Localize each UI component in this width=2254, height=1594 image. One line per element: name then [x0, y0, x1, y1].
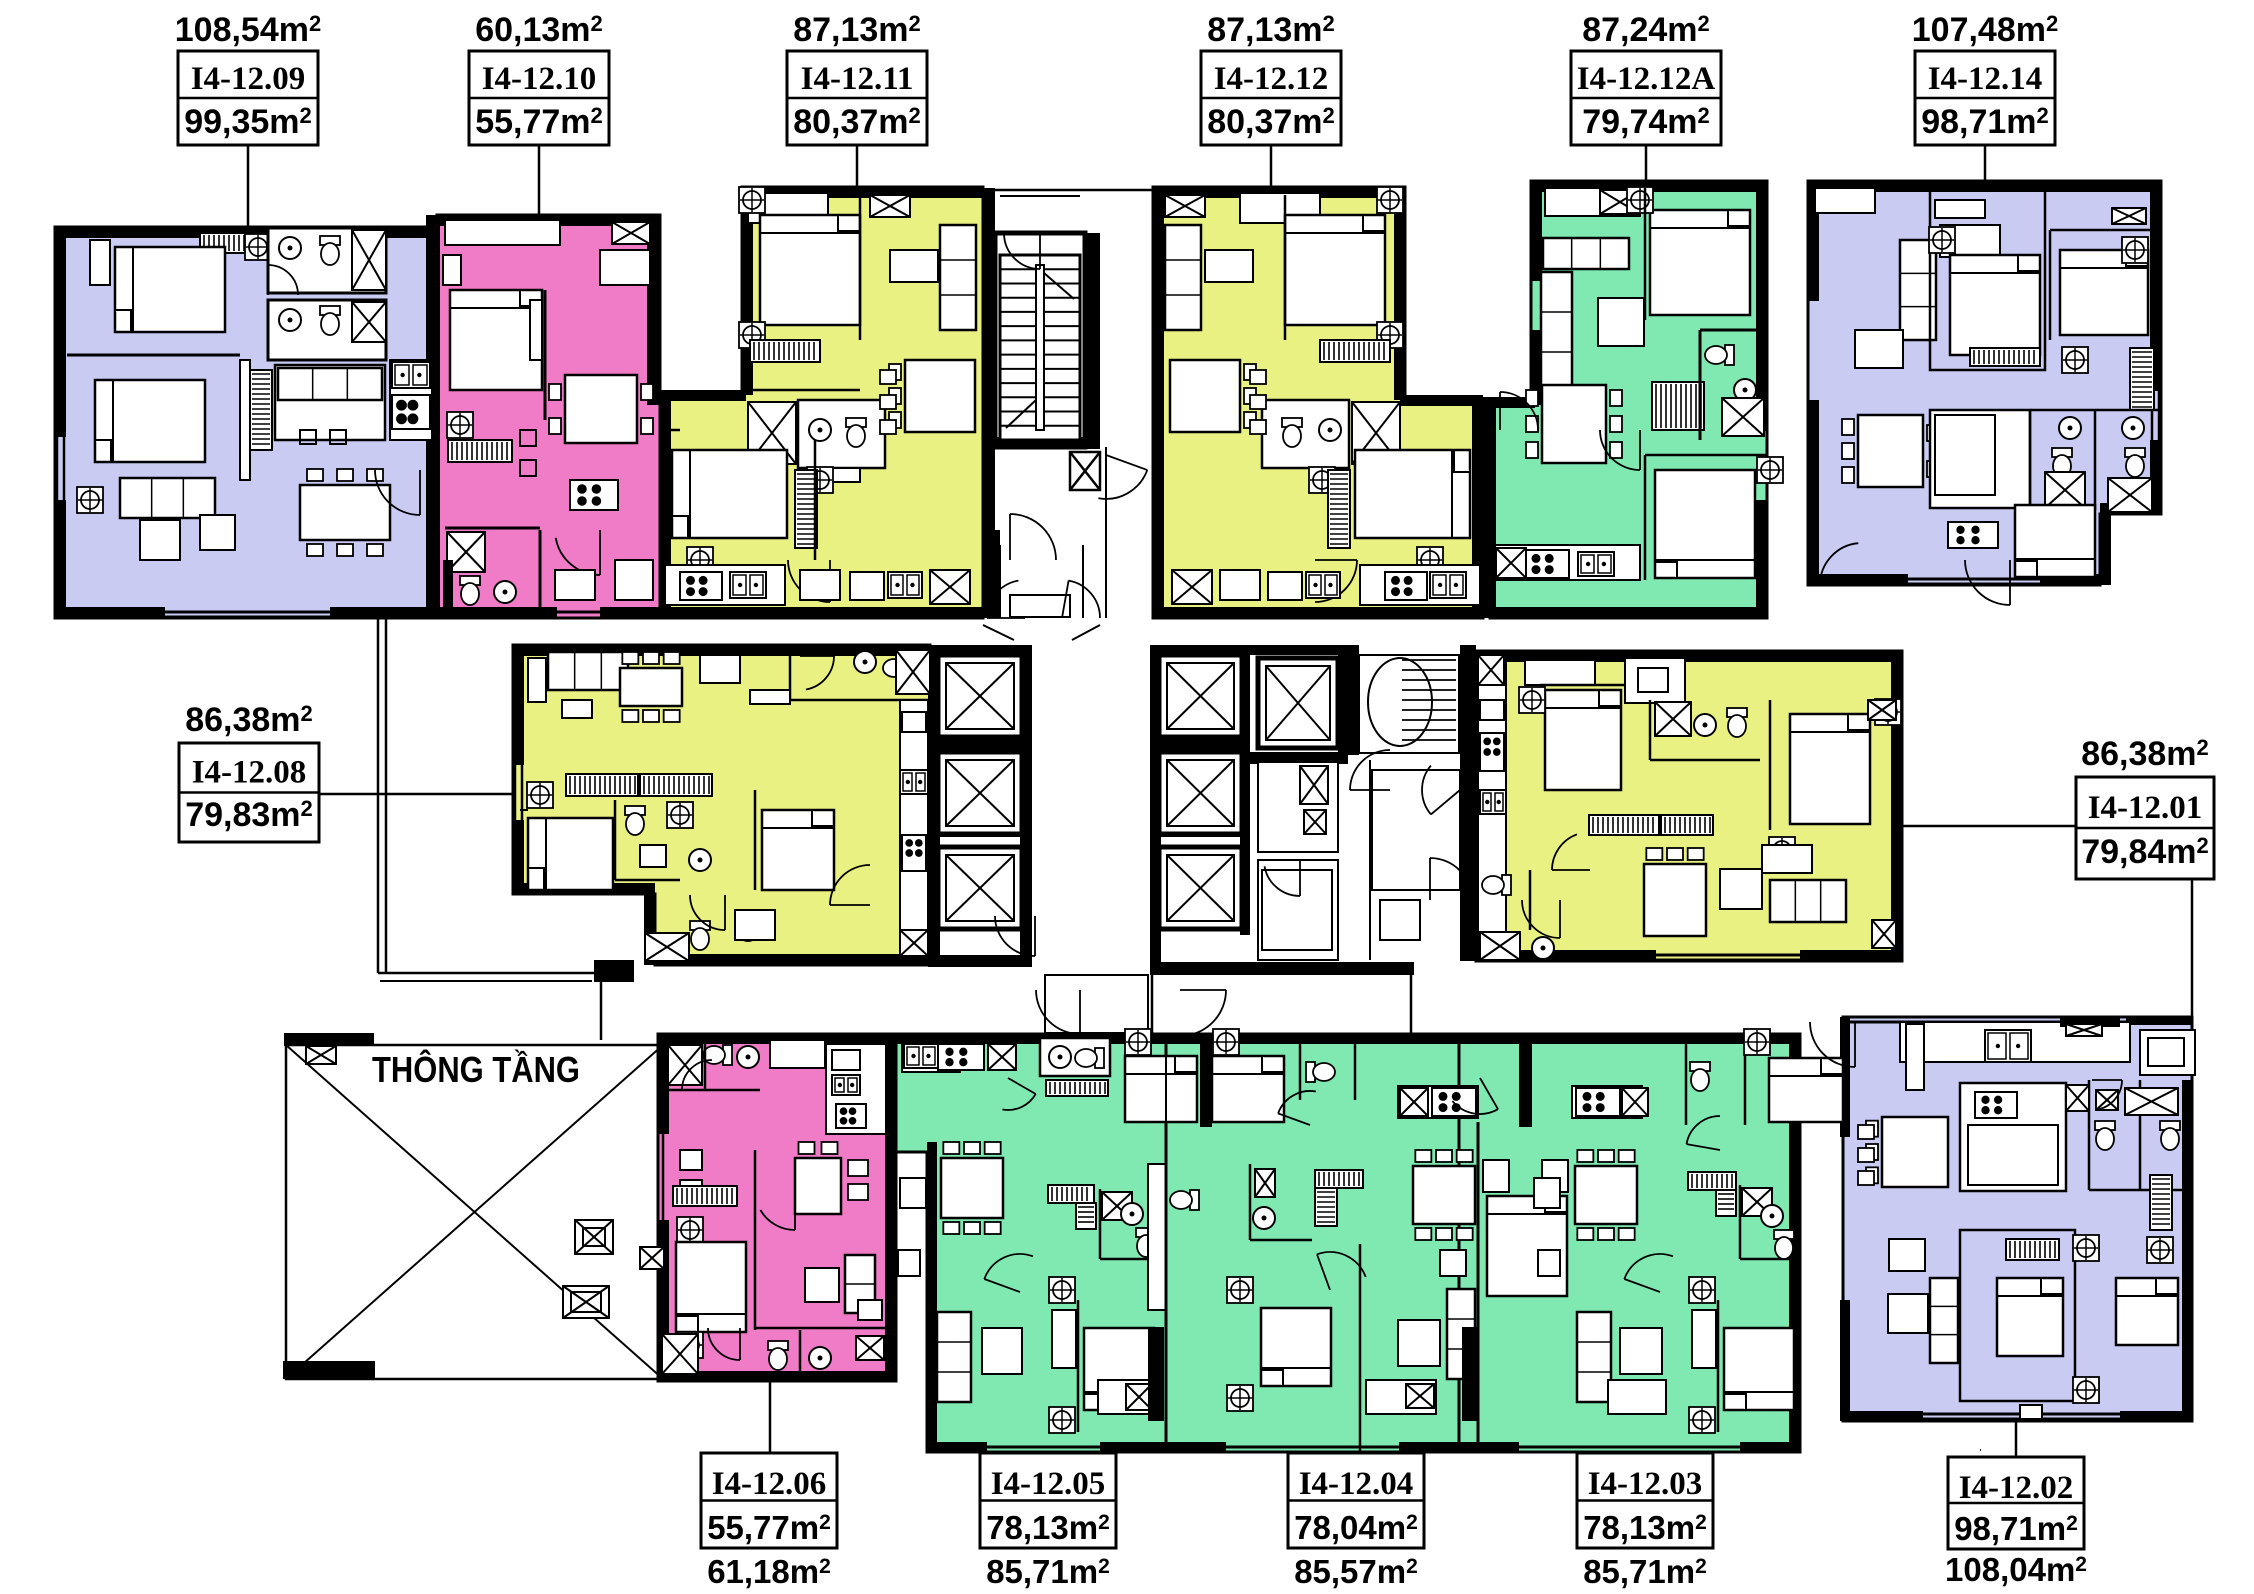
- svg-text:55,77m2: 55,77m2: [707, 1509, 831, 1546]
- svg-text:80,37m2: 80,37m2: [793, 103, 921, 141]
- svg-text:I4-12.12: I4-12.12: [1214, 61, 1329, 97]
- svg-text:I4-12.11: I4-12.11: [801, 61, 914, 97]
- svg-text:I4-12.04: I4-12.04: [1299, 1466, 1414, 1502]
- svg-text:79,74m2: 79,74m2: [1582, 103, 1710, 141]
- svg-text:78,13m2: 78,13m2: [1583, 1509, 1707, 1546]
- svg-text:THÔNG TẦNG: THÔNG TẦNG: [372, 1048, 580, 1090]
- svg-text:I4-12.08: I4-12.08: [192, 755, 307, 791]
- svg-text:I4-12.09: I4-12.09: [191, 61, 306, 97]
- svg-text:I4-12.12A: I4-12.12A: [1577, 61, 1716, 97]
- svg-text:108,04m2: 108,04m2: [1945, 1551, 2087, 1588]
- svg-text:107,48m2: 107,48m2: [1912, 11, 2058, 49]
- svg-text:I4-12.03: I4-12.03: [1588, 1466, 1703, 1502]
- svg-text:78,04m2: 78,04m2: [1294, 1509, 1418, 1546]
- svg-text:99,35m2: 99,35m2: [184, 103, 312, 141]
- svg-text:79,84m2: 79,84m2: [2081, 833, 2209, 871]
- svg-text:86,38m2: 86,38m2: [2081, 735, 2209, 773]
- svg-text:85,71m2: 85,71m2: [986, 1553, 1110, 1590]
- svg-text:80,37m2: 80,37m2: [1207, 103, 1335, 141]
- svg-text:I4-12.14: I4-12.14: [1928, 61, 2043, 97]
- svg-text:55,77m2: 55,77m2: [475, 103, 603, 141]
- svg-text:85,71m2: 85,71m2: [1583, 1553, 1707, 1590]
- svg-text:78,13m2: 78,13m2: [986, 1509, 1110, 1546]
- svg-text:87,24m2: 87,24m2: [1582, 11, 1710, 49]
- svg-text:98,71m2: 98,71m2: [1921, 103, 2049, 141]
- svg-text:I4-12.10: I4-12.10: [482, 61, 597, 97]
- svg-text:87,13m2: 87,13m2: [1207, 11, 1335, 49]
- svg-text:86,38m2: 86,38m2: [185, 701, 313, 739]
- svg-text:I4-12.01: I4-12.01: [2088, 790, 2203, 826]
- svg-text:108,54m2: 108,54m2: [175, 11, 321, 49]
- svg-text:I4-12.02: I4-12.02: [1959, 1470, 2074, 1506]
- svg-text:87,13m2: 87,13m2: [793, 11, 921, 49]
- svg-text:98,71m2: 98,71m2: [1954, 1510, 2078, 1547]
- svg-text:I4-12.05: I4-12.05: [991, 1466, 1106, 1502]
- svg-text:61,18m2: 61,18m2: [707, 1553, 831, 1590]
- svg-text:I4-12.06: I4-12.06: [712, 1466, 827, 1502]
- svg-text:85,57m2: 85,57m2: [1294, 1553, 1418, 1590]
- svg-text:60,13m2: 60,13m2: [475, 11, 603, 49]
- svg-text:79,83m2: 79,83m2: [185, 796, 313, 834]
